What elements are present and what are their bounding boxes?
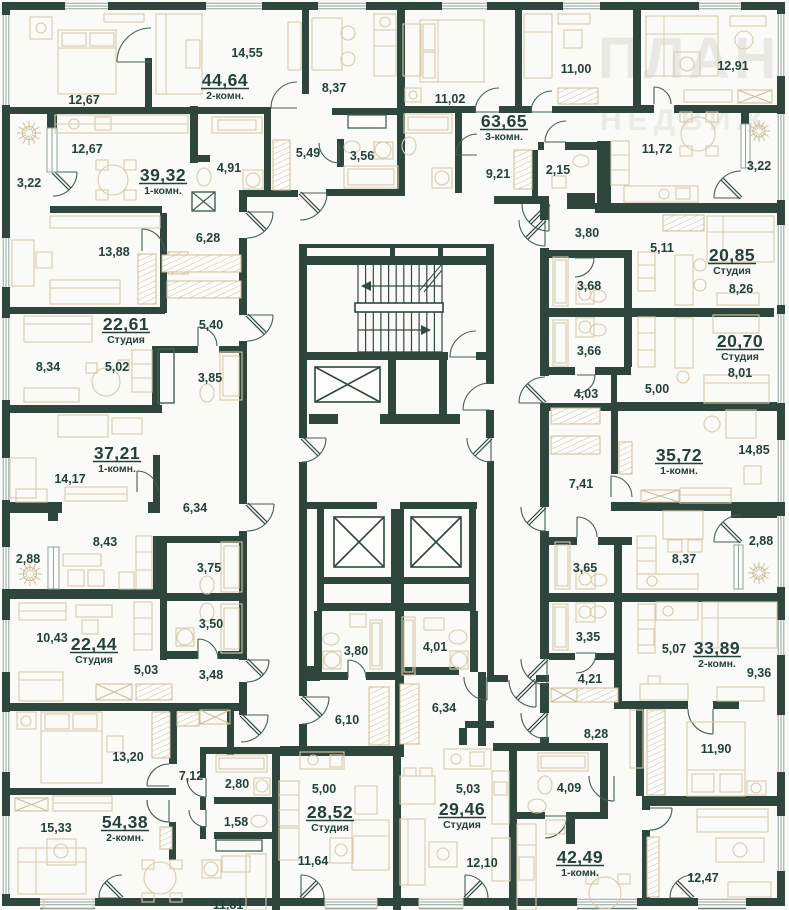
svg-text:8,01: 8,01 xyxy=(728,366,752,380)
svg-text:42,49: 42,49 xyxy=(557,847,603,867)
svg-text:3,80: 3,80 xyxy=(344,644,368,658)
svg-text:8,26: 8,26 xyxy=(729,282,753,296)
svg-text:12,10: 12,10 xyxy=(466,856,497,870)
svg-text:14,55: 14,55 xyxy=(231,46,262,60)
svg-text:Студия: Студия xyxy=(107,334,145,346)
svg-text:5,00: 5,00 xyxy=(312,782,336,796)
svg-text:1-комн.: 1-комн. xyxy=(98,463,136,475)
svg-text:37,21: 37,21 xyxy=(94,443,140,463)
svg-text:8,34: 8,34 xyxy=(36,360,60,374)
svg-text:11,90: 11,90 xyxy=(701,742,732,756)
svg-text:33,89: 33,89 xyxy=(694,638,740,658)
svg-text:39,32: 39,32 xyxy=(140,165,186,185)
svg-text:4,91: 4,91 xyxy=(217,161,241,175)
svg-text:Студия: Студия xyxy=(443,819,481,831)
svg-text:4,21: 4,21 xyxy=(578,672,602,686)
svg-text:11,81: 11,81 xyxy=(213,898,244,910)
svg-text:5,11: 5,11 xyxy=(650,241,674,255)
svg-text:5,49: 5,49 xyxy=(296,146,320,160)
svg-text:3,50: 3,50 xyxy=(199,617,223,631)
svg-text:9,21: 9,21 xyxy=(486,167,510,181)
svg-text:12,91: 12,91 xyxy=(717,59,748,73)
svg-text:10,43: 10,43 xyxy=(36,631,67,645)
svg-text:4,01: 4,01 xyxy=(423,640,447,654)
svg-text:2-комн.: 2-комн. xyxy=(106,832,144,844)
svg-text:7,41: 7,41 xyxy=(569,477,593,491)
svg-text:3-комн.: 3-комн. xyxy=(485,131,523,143)
svg-text:5,40: 5,40 xyxy=(199,318,223,332)
svg-text:3,35: 3,35 xyxy=(576,630,600,644)
svg-text:2-комн.: 2-комн. xyxy=(698,658,736,670)
svg-text:1,58: 1,58 xyxy=(224,815,248,829)
svg-text:8,37: 8,37 xyxy=(672,552,696,566)
svg-text:3,65: 3,65 xyxy=(573,561,597,575)
svg-text:11,00: 11,00 xyxy=(561,62,592,76)
svg-text:3,66: 3,66 xyxy=(577,344,601,358)
svg-text:4,03: 4,03 xyxy=(574,387,598,401)
svg-text:3,80: 3,80 xyxy=(575,226,599,240)
svg-text:12,47: 12,47 xyxy=(687,871,718,885)
svg-text:6,34: 6,34 xyxy=(432,701,456,715)
svg-text:5,03: 5,03 xyxy=(134,663,158,677)
svg-text:8,28: 8,28 xyxy=(584,727,608,741)
svg-text:29,46: 29,46 xyxy=(439,799,485,819)
svg-text:12,67: 12,67 xyxy=(68,93,99,107)
svg-text:5,07: 5,07 xyxy=(662,642,686,656)
svg-text:5,03: 5,03 xyxy=(456,782,480,796)
svg-text:Студия: Студия xyxy=(75,654,113,666)
svg-text:8,37: 8,37 xyxy=(322,81,346,95)
svg-text:3,22: 3,22 xyxy=(747,159,771,173)
svg-text:3,68: 3,68 xyxy=(577,279,601,293)
svg-text:13,88: 13,88 xyxy=(98,245,129,259)
svg-text:9,36: 9,36 xyxy=(747,666,771,680)
svg-text:15,33: 15,33 xyxy=(40,821,71,835)
svg-text:12,67: 12,67 xyxy=(71,142,102,156)
svg-text:2,80: 2,80 xyxy=(225,777,249,791)
svg-text:4,09: 4,09 xyxy=(557,781,581,795)
svg-text:8,43: 8,43 xyxy=(93,535,117,549)
svg-text:28,52: 28,52 xyxy=(307,802,353,822)
svg-text:11,72: 11,72 xyxy=(642,142,673,156)
svg-text:6,34: 6,34 xyxy=(183,501,207,515)
svg-text:63,65: 63,65 xyxy=(481,111,527,131)
svg-text:1-комн.: 1-комн. xyxy=(561,867,599,879)
svg-text:Студия: Студия xyxy=(721,351,759,363)
svg-text:7,12: 7,12 xyxy=(179,769,203,783)
svg-text:3,75: 3,75 xyxy=(197,561,221,575)
svg-text:22,61: 22,61 xyxy=(103,314,149,334)
svg-text:14,17: 14,17 xyxy=(54,472,85,486)
svg-text:2,15: 2,15 xyxy=(546,163,570,177)
svg-text:Студия: Студия xyxy=(311,822,349,834)
svg-text:44,64: 44,64 xyxy=(202,70,248,90)
svg-text:20,70: 20,70 xyxy=(717,331,763,351)
svg-text:35,72: 35,72 xyxy=(656,445,702,465)
svg-text:54,38: 54,38 xyxy=(102,812,148,832)
svg-text:6,10: 6,10 xyxy=(335,713,359,727)
svg-text:2,88: 2,88 xyxy=(16,552,40,566)
svg-text:20,85: 20,85 xyxy=(709,245,755,265)
svg-text:13,20: 13,20 xyxy=(112,750,143,764)
svg-text:3,48: 3,48 xyxy=(199,668,223,682)
svg-text:1-комн.: 1-комн. xyxy=(144,185,182,197)
svg-text:11,64: 11,64 xyxy=(298,854,329,868)
svg-text:3,85: 3,85 xyxy=(198,371,222,385)
svg-text:3,22: 3,22 xyxy=(17,176,41,190)
svg-text:Студия: Студия xyxy=(713,265,751,277)
svg-text:11,02: 11,02 xyxy=(435,92,466,106)
svg-text:2,88: 2,88 xyxy=(749,534,773,548)
svg-text:5,02: 5,02 xyxy=(105,360,129,374)
svg-text:14,85: 14,85 xyxy=(738,443,769,457)
svg-text:5,00: 5,00 xyxy=(645,382,669,396)
svg-text:6,28: 6,28 xyxy=(196,231,220,245)
svg-text:3,56: 3,56 xyxy=(350,149,374,163)
svg-text:ПЛАН: ПЛАН xyxy=(598,26,780,91)
svg-text:22,44: 22,44 xyxy=(71,634,117,654)
svg-text:1-комн.: 1-комн. xyxy=(660,465,698,477)
svg-text:2-комн.: 2-комн. xyxy=(206,90,244,102)
